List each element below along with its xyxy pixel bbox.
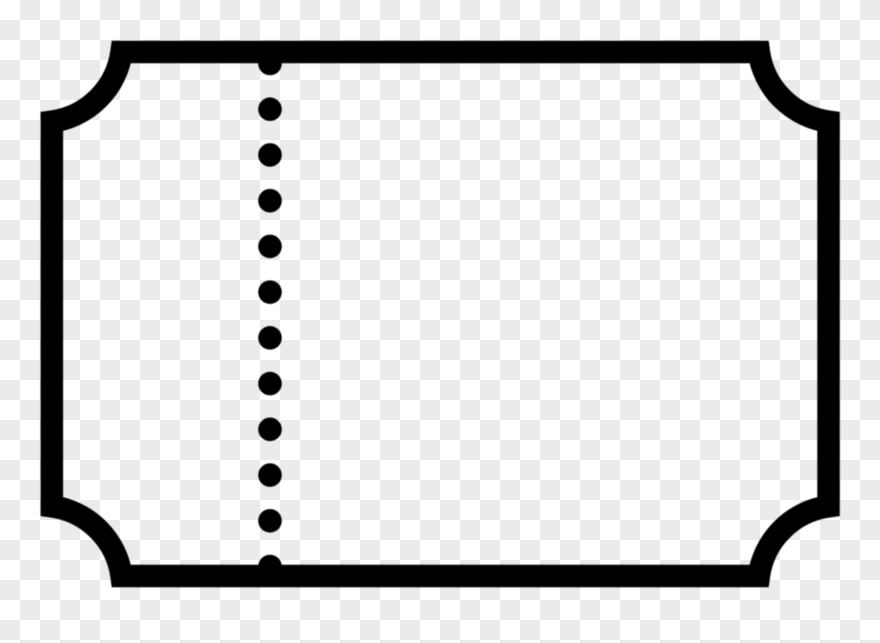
perforation-dot — [258, 326, 282, 350]
perforation-dot — [258, 143, 282, 167]
perforation-dot — [258, 418, 282, 442]
ticket-outline-icon — [0, 0, 880, 643]
perforation-dot — [258, 189, 282, 213]
perforation-dots — [258, 52, 282, 579]
perforation-dot — [258, 463, 282, 487]
perforation-dot — [258, 555, 282, 579]
perforation-dot — [258, 372, 282, 396]
perforation-dot — [258, 235, 282, 259]
perforation-dot — [258, 509, 282, 533]
perforation-dot — [258, 97, 282, 121]
clipart-canvas — [0, 0, 880, 643]
perforation-dot — [258, 52, 282, 76]
perforation-dot — [258, 280, 282, 304]
ticket-border — [52, 52, 829, 576]
